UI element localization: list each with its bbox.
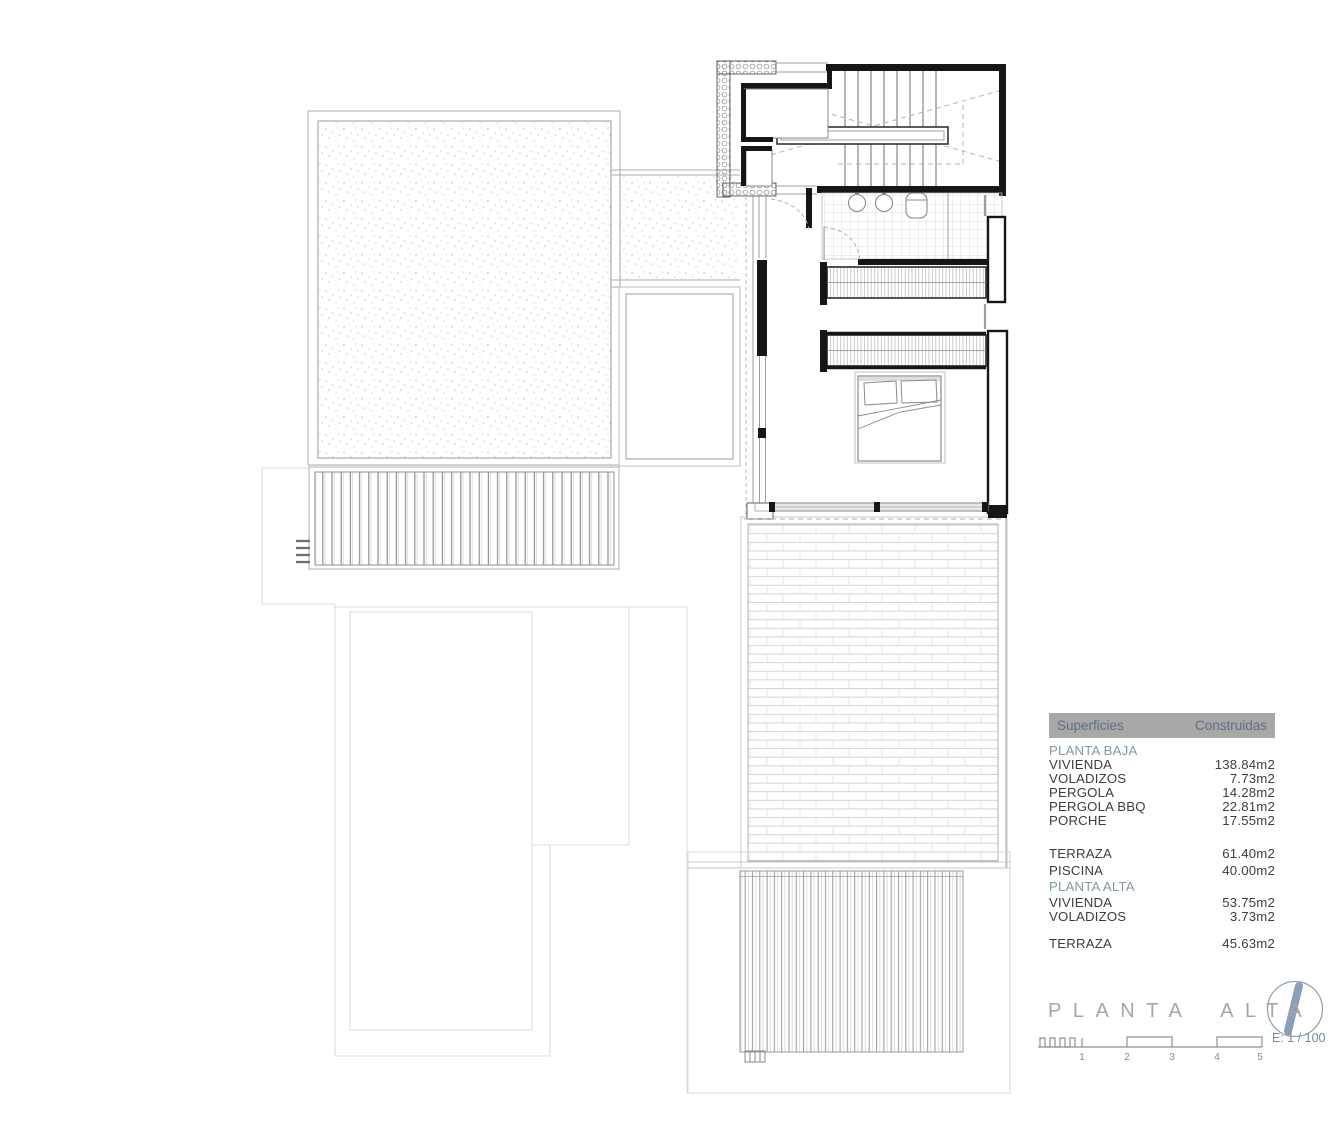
table-row: PLANTA BAJA [1049,744,1275,758]
page-title: PLANTA ALTA [1048,1000,1313,1023]
wall-piers [985,195,1007,518]
floor-plan-drawing [0,0,1333,1146]
bathroom [771,188,1003,262]
roof-extension [611,170,740,466]
table-row: VOLADIZOS3.73m2 [1049,910,1275,924]
ladder-icon [745,1051,765,1062]
areas-table-header-left: Superficies [1057,718,1124,733]
ladder-icon [296,541,310,562]
pillow [901,380,937,403]
floor-plan-sheet: Superficies Construidas PLANTA BAJA VIVI… [0,0,1333,1146]
table-row: TERRAZA45.63m2 [1049,937,1275,951]
pillow [864,381,897,405]
areas-table-header-right: Construidas [1195,718,1267,733]
sink-icon [876,195,893,212]
sink-icon [849,195,866,212]
closet [746,150,772,186]
stairwell [717,61,1006,197]
pergola-deck [296,467,619,569]
terrace-decking [741,515,1007,868]
table-row: PERGOLA BBQ22.81m2 [1049,800,1275,814]
scale-tick-label: 4 [1214,1051,1220,1063]
table-row: VIVIENDA53.75m2 [1049,896,1275,910]
roof-gravel [308,111,620,465]
closet [744,89,828,138]
toilet-icon [906,193,927,218]
scale-tick-label: 1 [1079,1051,1085,1063]
table-row: VOLADIZOS7.73m2 [1049,772,1275,786]
lower-deck [688,852,1010,1093]
scale-bar [1038,1037,1262,1047]
table-row: TERRAZA61.40m2 [1049,847,1275,861]
table-row: PISCINA40.00m2 [1049,864,1275,878]
scale-tick-label: 5 [1257,1051,1263,1063]
table-row: PLANTA ALTA [1049,880,1275,894]
table-row: PERGOLA14.28m2 [1049,786,1275,800]
table-row: VIVIENDA138.84m2 [1049,758,1275,772]
scale-tick-label: 3 [1169,1051,1175,1063]
table-row: PORCHE17.55m2 [1049,814,1275,828]
wardrobes [824,262,987,372]
areas-table-header: Superficies Construidas [1049,713,1275,738]
scale-tick-label: 2 [1124,1051,1130,1063]
scale-ratio-label: E: 1 / 100 [1272,1031,1326,1045]
